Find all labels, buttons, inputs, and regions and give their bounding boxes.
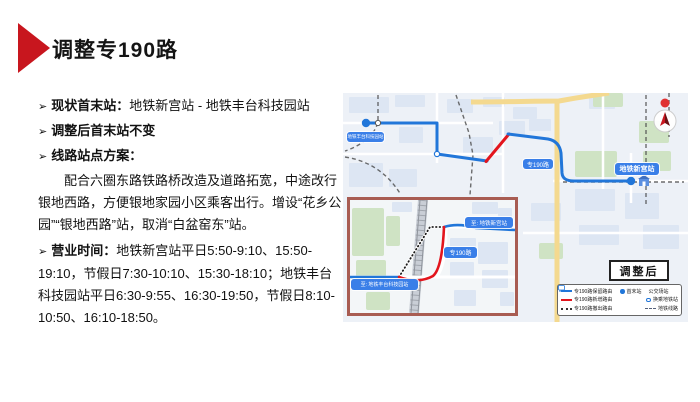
detail-inset-map: 至: 地铁新宫站 专190路 至: 地铁丰台科技园站 [347, 197, 518, 316]
bullet-arrow-icon: ➢ [38, 126, 47, 138]
north-badge-icon [661, 99, 670, 108]
bullet-colon: ： [129, 148, 142, 163]
interchange-icon [375, 120, 380, 125]
legend-withdrawn-route-swatch [561, 308, 572, 310]
inset-label-to-xingong: 至: 地铁新宫站 [465, 217, 513, 228]
bullet-arrow-icon: ➢ [38, 101, 47, 113]
hours-colon: ： [103, 243, 116, 258]
house-icon [638, 175, 650, 186]
label-route-number: 专190路 [523, 159, 553, 169]
inset-label-to-fengtai: 至: 地铁丰台科技园站 [351, 279, 418, 290]
legend-terminal-label: 首末站 [627, 288, 642, 295]
stop-node-icon [434, 151, 439, 156]
legend-metro-station-label: 换乘地铁站 [653, 296, 678, 303]
legend-row-2: 专190路新增路由 换乘地铁站 [561, 296, 678, 304]
inset-park-areas [352, 208, 400, 310]
terminal-dot-icon [620, 289, 625, 294]
legend-new-route-swatch [561, 299, 572, 301]
compass-icon [654, 99, 676, 133]
bullet-route-plan: ➢线路站点方案： [38, 145, 345, 168]
bullet-business-hours: ➢营业时间：地铁新宫站平日5:50-9:10、15:50-19:10，节假日7:… [38, 240, 345, 329]
metro-line-dash-icon [645, 308, 656, 309]
slide-body-text: ➢现状首末站：地铁新宫站 - 地铁丰台科技园站 ➢调整后首末站不变 ➢线路站点方… [38, 95, 345, 331]
page-title: 调整专190路 [52, 34, 178, 64]
label-left-terminal: 地铁丰台科技园站 [347, 132, 384, 142]
bullet-colon: ： [116, 98, 129, 113]
legend-kept-route-label: 专190路保留路由 [574, 288, 620, 295]
route-plan-paragraph: 配合六圈东路铁路桥改造及道路拓宽，中途改行银地西路，方便银地家园小区乘客出行。增… [38, 170, 345, 236]
legend-new-route-label: 专190路新增路由 [574, 296, 617, 303]
legend-metro-line-label: 地铁线路 [658, 305, 678, 312]
legend-row-3: 专190路撤出路由 地铁线路 [561, 305, 678, 313]
bullet-label: 线路站点方案 [51, 148, 129, 163]
bullet-current-terminals: ➢现状首末站：地铁新宫站 - 地铁丰台科技园站 [38, 95, 345, 118]
bullet-label: 现状首末站 [51, 98, 116, 113]
bullet-arrow-icon: ➢ [38, 246, 47, 258]
terminal-dot-xingong [627, 177, 635, 185]
bullet-terminals-unchanged: ➢调整后首末站不变 [38, 120, 345, 143]
hours-label: 营业时间 [51, 243, 103, 258]
bus-depot-icon [558, 285, 565, 292]
bullet-label: 调整后首末站不变 [51, 123, 155, 138]
title-marker-triangle-icon [18, 23, 50, 73]
legend-bus-depot-label: 公交场站 [649, 288, 669, 295]
bullet-text: 地铁新宫站 - 地铁丰台科技园站 [129, 98, 310, 113]
legend-row-1: 专190路保留路由 首末站 公交场站 [561, 287, 678, 295]
bullet-arrow-icon: ➢ [38, 151, 47, 163]
inset-label-route-number: 专190路 [444, 247, 477, 258]
map-legend: 专190路保留路由 首末站 公交场站 专190路新增路由 换乘地铁站 专190路… [557, 284, 682, 316]
label-right-terminal: 地铁新宫站 [615, 163, 659, 175]
route-map: 地铁丰台科技园站 专190路 地铁新宫站 [343, 93, 688, 322]
presentation-slide: 调整专190路 ➢现状首末站：地铁新宫站 - 地铁丰台科技园站 ➢调整后首末站不… [0, 0, 700, 402]
after-adjustment-badge: 调整后 [609, 260, 669, 281]
legend-withdrawn-route-label: 专190路撤出路由 [574, 305, 619, 312]
terminal-dot-fengtai [362, 119, 370, 127]
metro-station-icon [646, 298, 651, 303]
